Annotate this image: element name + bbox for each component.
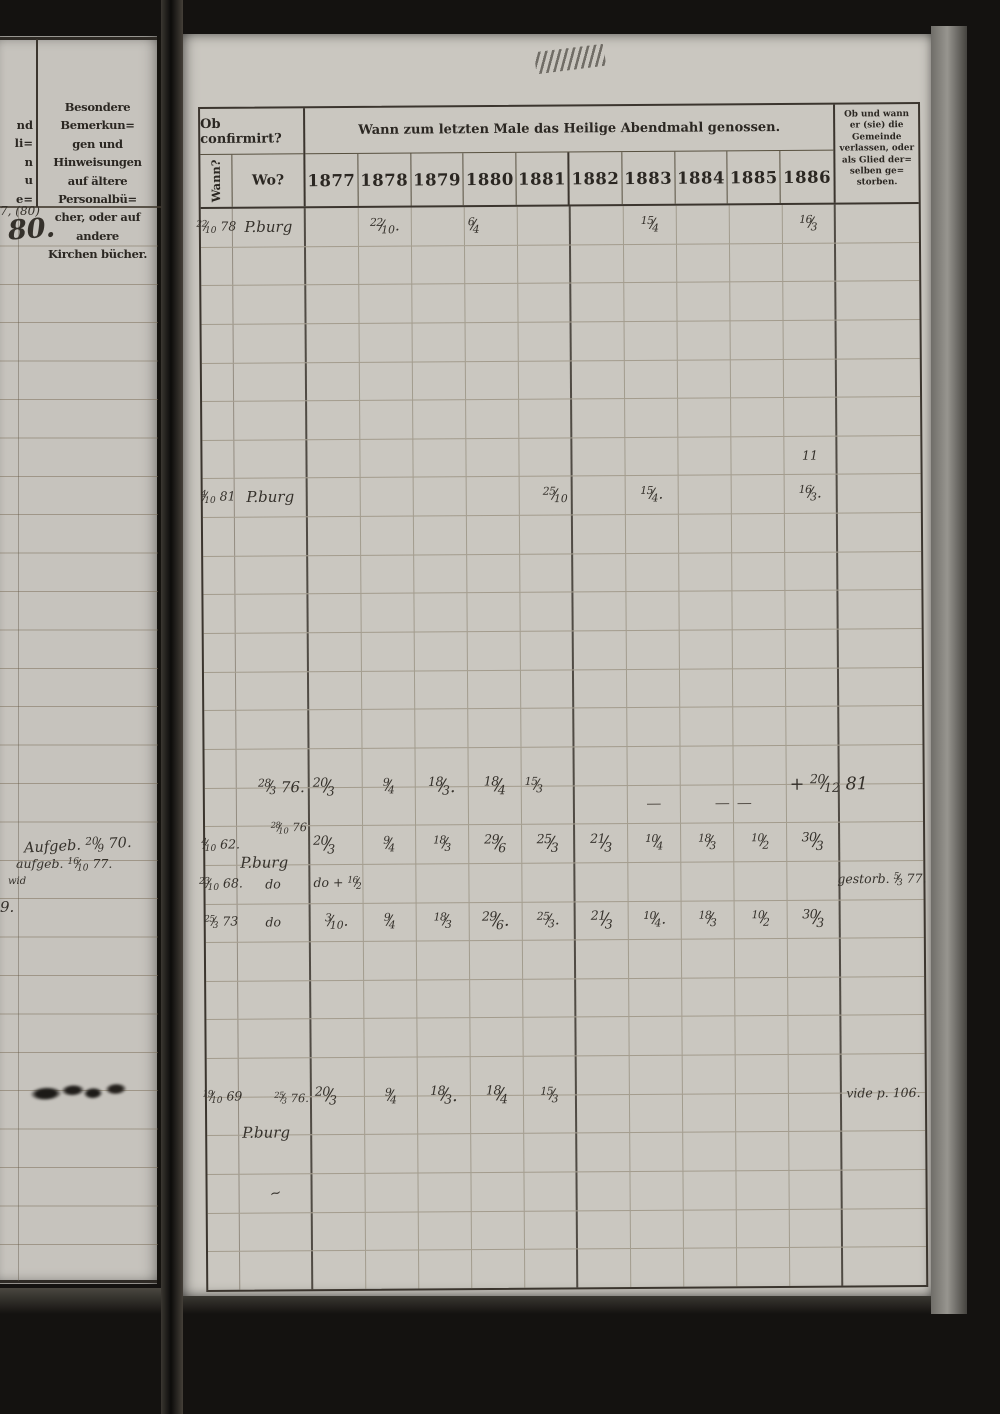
table-cell — [575, 863, 628, 901]
table-cell — [234, 363, 307, 401]
handwritten-entry: 28⁄3 76. — [258, 777, 305, 798]
table-cell: 9⁄4 — [364, 903, 417, 941]
table-cell — [208, 1213, 240, 1251]
table-cell: — — [681, 785, 734, 823]
table-cell — [838, 474, 921, 512]
table-cell — [784, 321, 837, 359]
handwritten-entry: P.burg — [242, 1124, 290, 1142]
table-cell — [201, 286, 233, 324]
table-cell — [625, 360, 678, 398]
table-row — [206, 1015, 924, 1059]
table-cell — [624, 244, 677, 282]
table-cell — [234, 440, 307, 478]
table-cell — [418, 1135, 471, 1173]
handwritten-entry: — — [715, 794, 730, 812]
year-header-row: 1877187818791880188118821883188418851886 — [305, 151, 833, 207]
handwritten-entry: do — [265, 915, 281, 930]
table-cell: 21⁄3 — [576, 902, 629, 940]
table-cell — [730, 244, 783, 282]
handwritten-fragment: wid — [8, 876, 26, 887]
table-cell — [730, 205, 783, 243]
table-cell — [624, 283, 677, 321]
departed-header-line: Gemeinde — [835, 132, 918, 144]
table-cell — [417, 980, 470, 1018]
table-cell — [839, 706, 922, 744]
table-cell — [571, 283, 624, 321]
table-cell — [240, 1252, 313, 1290]
table-row — [201, 243, 919, 287]
table-cell — [628, 863, 681, 901]
table-row — [206, 977, 924, 1021]
table-cell — [238, 942, 311, 980]
table-cell: 30⁄3 — [787, 823, 840, 861]
table-cell — [839, 668, 922, 706]
table-cell — [679, 553, 732, 591]
table-cell — [414, 555, 467, 593]
table-cell — [236, 672, 309, 710]
handwritten-entry: 25⁄10 — [543, 485, 568, 506]
table-cell — [627, 631, 680, 669]
table-cell — [788, 1016, 841, 1054]
table-row: ~ — [207, 1170, 925, 1214]
table-cell — [577, 1133, 630, 1171]
handwritten-entry: 21⁄3 — [591, 908, 613, 932]
handwritten-entry: 25⁄3 — [537, 831, 559, 855]
table-cell — [308, 478, 361, 516]
table-cell — [679, 514, 732, 552]
handwritten-entry: 16⁄3. — [799, 483, 822, 504]
table-cell — [415, 632, 468, 670]
table-cell: 15⁄4 — [624, 206, 677, 244]
table-cell — [364, 1019, 417, 1057]
table-cell: 20⁄3 — [310, 788, 363, 826]
table-cell — [521, 709, 574, 747]
table-cell — [683, 1094, 736, 1132]
handwritten-entry: do — [265, 876, 281, 891]
handwritten-entry: 18⁄4 — [484, 774, 506, 798]
table-cell — [470, 980, 523, 1018]
table-cell — [308, 594, 361, 632]
table-cell: 25⁄10 — [520, 477, 573, 515]
table-cell — [467, 477, 520, 515]
table-cell — [789, 1132, 842, 1170]
table-cell: + 20⁄12 81 — [787, 784, 840, 822]
year-label: 1884 — [675, 151, 728, 203]
table-cell — [413, 400, 466, 438]
table-row: 11 — [202, 436, 920, 480]
table-cell — [626, 592, 679, 630]
table-cell — [786, 707, 839, 745]
table-cell — [790, 1209, 843, 1247]
table-cell — [419, 1212, 472, 1250]
table-cell — [683, 1171, 736, 1209]
table-cell: 20⁄3 — [312, 1097, 365, 1135]
table-cell — [735, 978, 788, 1016]
year-label: 1880 — [464, 153, 517, 205]
table-cell — [519, 438, 572, 476]
table-cell — [625, 399, 678, 437]
handwritten-entry: 4⁄10 81 — [201, 489, 236, 506]
table-cell — [731, 398, 784, 436]
table-cell — [201, 247, 233, 285]
table-cell — [841, 1015, 924, 1053]
table-cell — [629, 978, 682, 1016]
table-cell — [627, 669, 680, 707]
table-cell — [840, 822, 923, 860]
table-cell — [577, 1056, 630, 1094]
table-cell — [415, 671, 468, 709]
table-cell — [578, 1249, 631, 1287]
table-cell — [203, 518, 235, 556]
table-cell — [520, 554, 573, 592]
handwritten-entry: 9⁄4 — [383, 776, 395, 797]
table-cell — [235, 595, 308, 633]
table-cell — [466, 400, 519, 438]
table-cell — [308, 517, 361, 555]
table-cell: 9⁄4 — [363, 787, 416, 825]
handwritten-entry: 10⁄2 — [752, 908, 770, 929]
table-cell — [234, 401, 307, 439]
table-cell — [626, 515, 679, 553]
table-cell — [784, 398, 837, 436]
table-cell: 30⁄3 — [788, 900, 841, 938]
table-cell — [361, 478, 414, 516]
left-row-rules — [0, 208, 158, 1281]
table-cell — [413, 362, 466, 400]
table-row — [202, 320, 920, 364]
table-cell — [736, 1132, 789, 1170]
table-cell — [523, 1018, 576, 1056]
table-cell — [625, 322, 678, 360]
table-cell: vide p. 106. — [842, 1093, 925, 1131]
table-row — [204, 706, 922, 750]
table-cell — [365, 1135, 418, 1173]
table-cell — [732, 591, 785, 629]
table-cell — [519, 400, 572, 438]
table-cell — [737, 1248, 790, 1286]
table-cell — [313, 1213, 366, 1251]
table-cell — [234, 324, 307, 362]
table-row: 4⁄10 62.28⁄10 76P.burg20⁄39⁄418⁄329⁄625⁄… — [205, 822, 923, 866]
table-cell: 9⁄4 — [365, 1096, 418, 1134]
table-cell — [627, 747, 680, 785]
table-cell — [677, 283, 730, 321]
table-cell: do + 16⁄2 — [310, 865, 363, 903]
table-cell — [679, 476, 732, 514]
table-cell — [467, 555, 520, 593]
table-cell — [202, 325, 234, 363]
handwritten-entry: 16⁄3 — [799, 212, 817, 233]
margin-fragment: nd — [0, 116, 33, 134]
table-cell — [677, 244, 730, 282]
year-label: 1885 — [728, 151, 781, 203]
table-cell: 22⁄10 78 — [201, 209, 233, 247]
pen-squiggle — [534, 44, 606, 74]
table-cell: 20⁄3 — [310, 826, 363, 864]
table-header: Ob confirmirt? Wann? Wo? Wann zum letzte… — [200, 104, 919, 209]
table-cell: 18⁄3 — [681, 824, 734, 862]
table-cell — [240, 1213, 313, 1251]
handwritten-entry: 9⁄4 — [385, 1085, 397, 1106]
remarks-header-line: Besondere Bemerkun= — [37, 98, 158, 135]
when-label: Wann? — [209, 159, 223, 202]
table-cell — [307, 362, 360, 400]
left-page: ndli=nue= Besondere Bemerkun=gen und Hin… — [0, 36, 161, 1284]
handwritten-entry: 25⁄3 76. — [274, 1090, 309, 1106]
table-cell — [360, 439, 413, 477]
table-cell — [783, 282, 836, 320]
table-cell — [412, 246, 465, 284]
table-cell — [472, 1211, 525, 1249]
table-cell — [236, 711, 309, 749]
table-cell: ~ — [239, 1174, 312, 1212]
table-cell — [627, 708, 680, 746]
table-cell — [202, 402, 234, 440]
table-cell — [471, 1134, 524, 1172]
table-cell: 18⁄3. — [418, 1096, 471, 1134]
table-cell — [837, 436, 920, 474]
handwritten-entry: 6⁄4 — [468, 215, 480, 236]
table-cell — [206, 943, 238, 981]
table-cell: 23⁄10 68. — [205, 866, 237, 904]
table-cell — [730, 282, 783, 320]
table-cell — [417, 941, 470, 979]
table-cell — [472, 1250, 525, 1288]
table-row: 4⁄10 81P.burg25⁄1015⁄4.16⁄3. — [203, 474, 921, 518]
table-cell — [471, 1173, 524, 1211]
table-cell: 25⁄3. — [523, 902, 576, 940]
handwritten-entry: 15⁄3 — [540, 1084, 558, 1105]
table-cell — [361, 594, 414, 632]
handwritten-entry: 22⁄10. — [370, 215, 400, 236]
table-cell — [731, 360, 784, 398]
table-cell — [631, 1249, 684, 1287]
table-cell — [468, 709, 521, 747]
handwritten-entry: 29⁄6. — [482, 908, 510, 932]
table-cell — [625, 438, 678, 476]
handwritten-entry: P.burg — [246, 488, 294, 506]
departed-header-line: selben ge= — [835, 166, 918, 178]
table-cell — [839, 629, 922, 667]
table-cell — [206, 982, 238, 1020]
table-cell — [836, 281, 919, 319]
handwritten-entry: + 20⁄12 81 — [790, 771, 868, 795]
table-cell — [238, 981, 311, 1019]
table-cell: 18⁄3 — [682, 901, 735, 939]
table-cell — [360, 323, 413, 361]
table-cell — [309, 633, 362, 671]
table-cell — [785, 591, 838, 629]
table-cell — [360, 401, 413, 439]
table-cell — [202, 363, 234, 401]
table-cell — [518, 245, 571, 283]
table-cell — [521, 670, 574, 708]
table-cell — [572, 399, 625, 437]
table-cell — [311, 981, 364, 1019]
table-cell — [630, 1133, 683, 1171]
table-cell — [683, 1055, 736, 1093]
table-cell — [789, 1093, 842, 1131]
table-cell — [842, 1170, 925, 1208]
table-cell — [525, 1250, 578, 1288]
handwritten-entry: 30⁄3 — [802, 829, 824, 853]
table-cell — [307, 401, 360, 439]
table-cell — [308, 556, 361, 594]
table-cell — [467, 593, 520, 631]
table-cell — [678, 399, 731, 437]
table-cell — [235, 556, 308, 594]
handwritten-entry: 10⁄2 — [751, 831, 769, 852]
departed-header-line: als Glied der= — [835, 155, 918, 167]
departed-header-line: verlassen, oder — [835, 143, 918, 155]
table-cell — [360, 362, 413, 400]
handwritten-entry: P.burg — [244, 217, 292, 235]
table-cell — [841, 938, 924, 976]
table-row: 23⁄10 68.dodo + 16⁄2gestorb. 5⁄3 77. — [205, 861, 923, 905]
table-cell — [207, 1175, 239, 1213]
table-row — [203, 552, 921, 596]
table-cell: 16⁄3 — [783, 205, 836, 243]
table-row — [204, 629, 922, 673]
table-cell — [733, 630, 786, 668]
table-cell — [204, 672, 236, 710]
table-cell — [574, 631, 627, 669]
table-cell — [238, 1020, 311, 1058]
table-cell — [577, 1095, 630, 1133]
table-cell: 21⁄3 — [575, 824, 628, 862]
handwritten-entry: 18⁄3 — [699, 909, 717, 930]
table-cell — [837, 359, 920, 397]
table-cell: 15⁄3 — [524, 1095, 577, 1133]
handwritten-entry: 25⁄3. — [537, 910, 560, 931]
table-cell — [574, 708, 627, 746]
table-cell: 18⁄4 — [469, 786, 522, 824]
table-cell — [736, 1055, 789, 1093]
table-cell — [522, 863, 575, 901]
table-cell — [524, 1172, 577, 1210]
remarks-header-line: gen und Hinweisungen — [37, 135, 158, 172]
right-page: Ob confirmirt? Wann? Wo? Wann zum letzte… — [183, 34, 931, 1296]
table-cell — [681, 862, 734, 900]
table-row: 22⁄10 78P.burg22⁄10.6⁄415⁄416⁄3 — [201, 204, 919, 248]
table-cell: 29⁄6. — [470, 902, 523, 940]
table-cell — [573, 554, 626, 592]
table-cell — [413, 439, 466, 477]
table-row — [208, 1247, 926, 1290]
table-cell — [519, 361, 572, 399]
handwritten-entry: 4⁄10 62. — [201, 837, 240, 855]
table-cell — [732, 553, 785, 591]
table-cell: 15⁄4. — [626, 476, 679, 514]
table-cell — [518, 284, 571, 322]
table-cell — [789, 1055, 842, 1093]
table-cell: 4⁄10 62. — [205, 827, 237, 865]
table-cell — [679, 592, 732, 630]
table-cell — [735, 1016, 788, 1054]
margin-fragment: u — [0, 171, 33, 189]
table-cell — [523, 941, 576, 979]
table-row — [203, 513, 921, 557]
handwritten-entry: 20⁄3 — [313, 775, 335, 799]
table-cell — [202, 441, 234, 479]
table-cell — [630, 1094, 683, 1132]
table-cell — [788, 939, 841, 977]
handwritten-entry: vide p. 106. — [846, 1085, 920, 1101]
table-cell — [465, 245, 518, 283]
handwritten-entry: 18⁄3 — [433, 833, 451, 854]
table-cell — [629, 940, 682, 978]
table-row — [201, 281, 919, 325]
table-cell — [359, 246, 412, 284]
table-row: 25⁄3 73do3⁄10.9⁄418⁄329⁄6.25⁄3.21⁄310⁄4.… — [206, 900, 924, 944]
table-cell — [630, 1056, 683, 1094]
handwritten-entry: 18⁄3. — [428, 774, 456, 798]
table-cell — [466, 361, 519, 399]
table-cell — [306, 285, 359, 323]
table-cell — [415, 709, 468, 747]
table-cell — [574, 670, 627, 708]
handwritten-entry: 19⁄10 69 — [202, 1088, 242, 1106]
table-cell: P.burg — [233, 208, 306, 246]
table-row — [202, 397, 920, 441]
table-cell — [571, 245, 624, 283]
table-cell — [735, 939, 788, 977]
table-cell — [309, 710, 362, 748]
remarks-header-line: auf ältere Personalbü= — [37, 172, 158, 209]
handwritten-entry: 3⁄10. — [325, 911, 349, 932]
table-cell — [525, 1211, 578, 1249]
table-cell — [366, 1251, 419, 1289]
table-cell — [519, 322, 572, 360]
table-cell — [631, 1210, 684, 1248]
left-page-top-border — [0, 37, 161, 40]
table-cell: 9⁄4 — [363, 826, 416, 864]
table-cell — [520, 593, 573, 631]
table-cell: 25⁄3 — [522, 825, 575, 863]
table-cell — [571, 206, 624, 244]
table-cell — [678, 437, 731, 475]
table-cell — [203, 557, 235, 595]
table-cell — [311, 1019, 364, 1057]
margin-fragment: li= — [0, 134, 33, 152]
table-cell — [362, 633, 415, 671]
year-label: 1877 — [305, 154, 358, 206]
table-cell — [307, 440, 360, 478]
table-cell — [736, 1094, 789, 1132]
table-cell — [466, 323, 519, 361]
handwritten-entry: 20⁄3 — [313, 832, 335, 856]
confirmed-subheader-row: Wann? Wo? — [200, 154, 303, 207]
table-cell — [680, 669, 733, 707]
table-cell — [306, 247, 359, 285]
table-cell: 10⁄2 — [735, 900, 788, 938]
table-cell: 10⁄4 — [628, 824, 681, 862]
handwritten-entry: 9⁄4 — [384, 911, 396, 932]
table-cell — [470, 1018, 523, 1056]
book-edge-strip — [931, 26, 967, 1314]
table-cell — [364, 942, 417, 980]
table-cell — [306, 208, 359, 246]
table-cell — [630, 1172, 683, 1210]
table-cell — [204, 711, 236, 749]
table-cell — [520, 516, 573, 554]
table-cell — [207, 1136, 239, 1174]
page-gutter — [161, 0, 183, 1414]
table-cell — [731, 321, 784, 359]
table-cell: gestorb. 5⁄3 77. — [840, 861, 923, 899]
handwritten-entry: 28⁄10 76 — [271, 820, 307, 836]
table-body: 22⁄10 78P.burg22⁄10.6⁄415⁄416⁄3114⁄10 81… — [201, 204, 927, 1290]
